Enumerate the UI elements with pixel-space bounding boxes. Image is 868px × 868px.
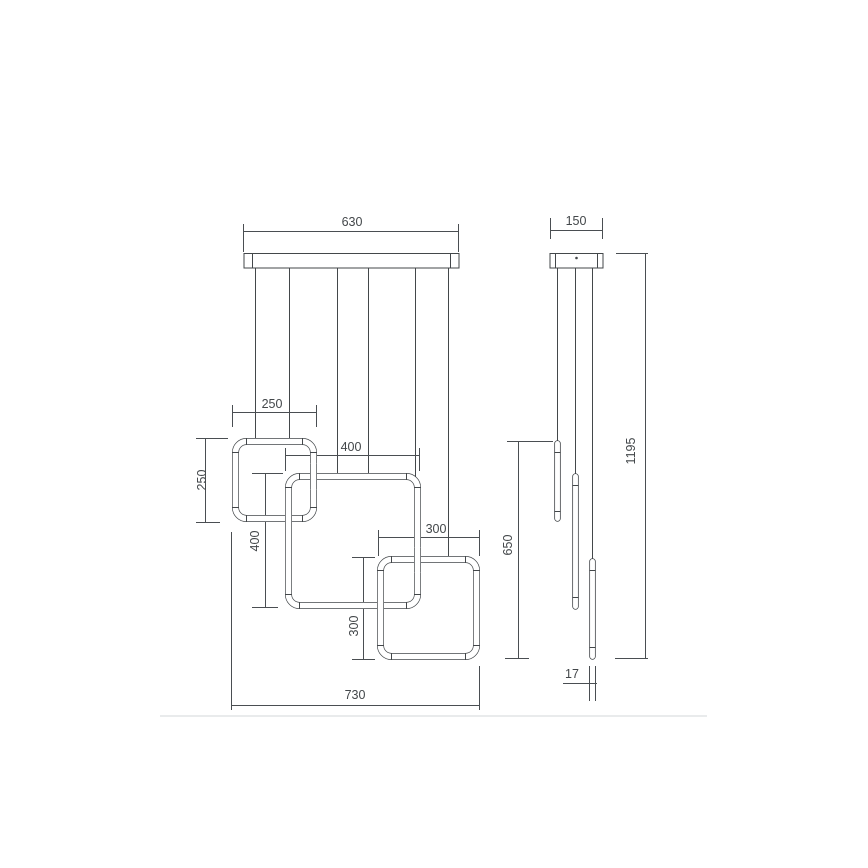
canopy-bar-front xyxy=(244,254,459,269)
dim-third-square-width: 300 xyxy=(378,522,480,556)
dim-canopy-depth: 150 xyxy=(550,214,603,239)
dim-label-overall-height: 1195 xyxy=(624,438,638,465)
dim-medium-square-height: 400 xyxy=(248,473,283,608)
tube-side-medium xyxy=(572,477,578,607)
tube-side-small xyxy=(554,444,560,519)
square-tube-medium xyxy=(285,473,421,609)
lamp-technical-drawing-page: 630 250 250 xyxy=(0,0,868,868)
dim-small-square-width: 250 xyxy=(232,397,317,427)
dim-label-canopy-depth: 150 xyxy=(566,214,587,228)
dim-label-overall-width: 730 xyxy=(345,688,366,702)
dim-label-third-square-height: 300 xyxy=(347,616,361,637)
dim-small-square-height: 250 xyxy=(195,438,228,523)
dim-label-small-square-width: 250 xyxy=(262,397,283,411)
tube-joints-medium xyxy=(285,473,421,609)
dim-tubes-span-height: 650 xyxy=(501,441,553,659)
dim-canopy-width: 630 xyxy=(243,215,459,252)
dim-tube-diameter: 17 xyxy=(563,666,597,701)
dim-label-medium-square-height: 400 xyxy=(248,531,262,552)
dim-label-canopy-width: 630 xyxy=(342,215,363,229)
dim-label-medium-square-width: 400 xyxy=(341,440,362,454)
dim-label-small-square-height: 250 xyxy=(195,470,209,491)
canopy-screw-dot xyxy=(575,257,578,260)
tube-side-third xyxy=(589,562,595,657)
canopy-bar-side xyxy=(550,254,603,269)
dim-label-third-square-width: 300 xyxy=(426,522,447,536)
front-view: 630 250 250 xyxy=(195,215,480,710)
dim-label-tube-diameter: 17 xyxy=(565,667,579,681)
dim-overall-height: 1195 xyxy=(615,253,648,659)
lamp-technical-drawing: 630 250 250 xyxy=(0,0,868,868)
dim-label-tubes-span-height: 650 xyxy=(501,535,515,556)
side-view: 150 xyxy=(501,214,648,701)
